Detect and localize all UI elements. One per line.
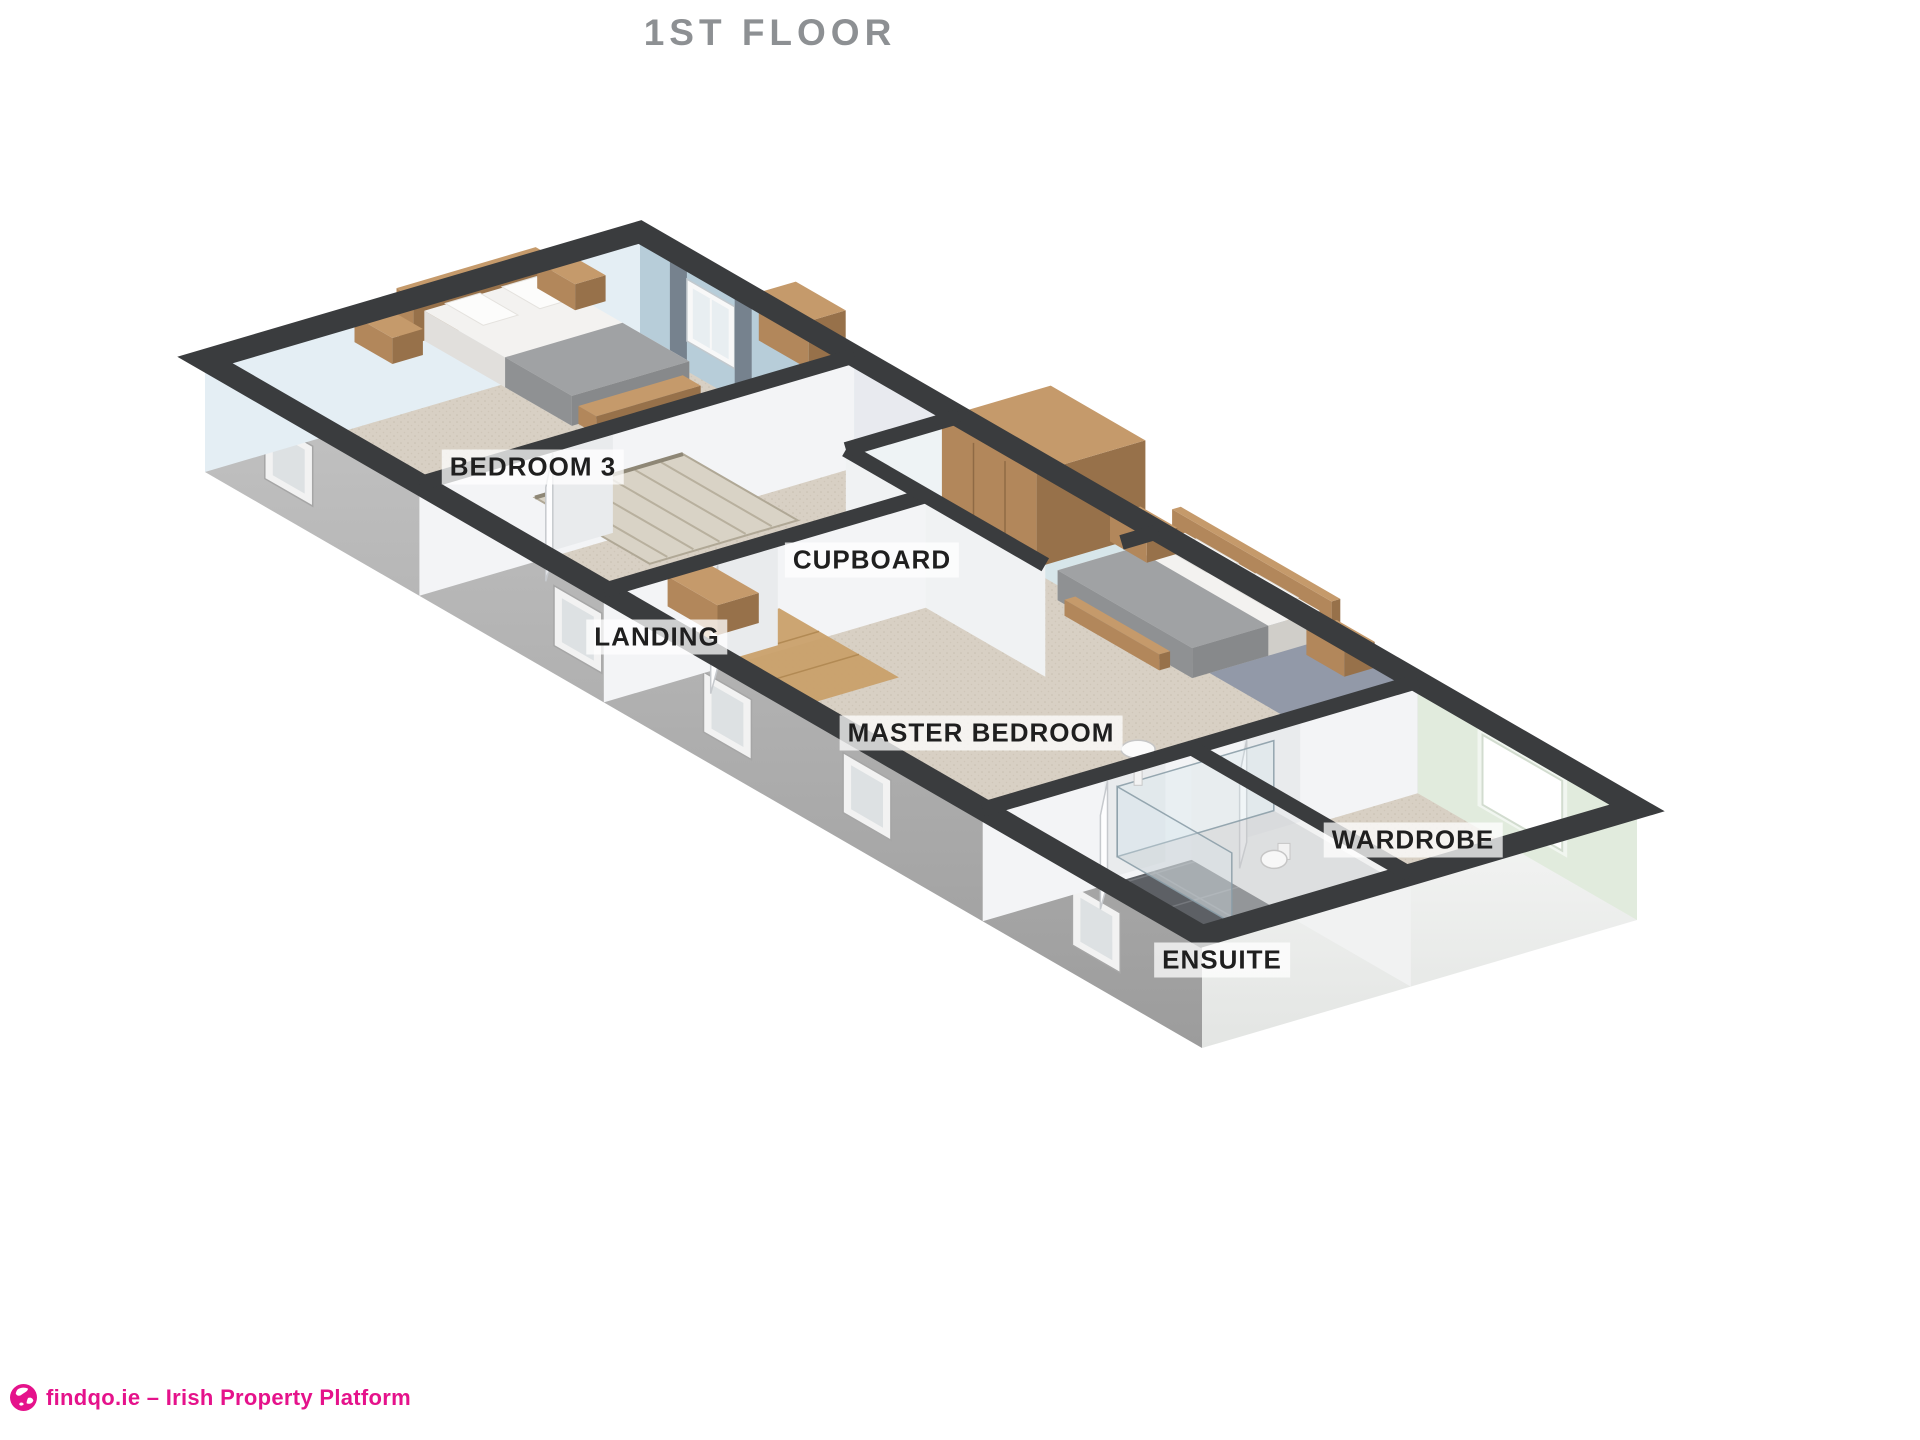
brand-text: findqo.ie – Irish Property Platform (46, 1385, 411, 1411)
room-label-bedroom-3: BEDROOM 3 (442, 450, 624, 485)
room-label-ensuite: ENSUITE (1154, 943, 1290, 978)
brand-footer: findqo.ie – Irish Property Platform (10, 1384, 411, 1411)
floorplan-page: 1ST FLOOR BEDROOM 3 LANDING CUPBOARD MAS… (0, 0, 1920, 1440)
room-label-cupboard: CUPBOARD (785, 543, 959, 578)
room-label-master-bedroom: MASTER BEDROOM (840, 716, 1123, 751)
globe-icon (10, 1384, 37, 1411)
room-label-wardrobe: WARDROBE (1324, 823, 1503, 858)
room-label-landing: LANDING (586, 620, 727, 655)
